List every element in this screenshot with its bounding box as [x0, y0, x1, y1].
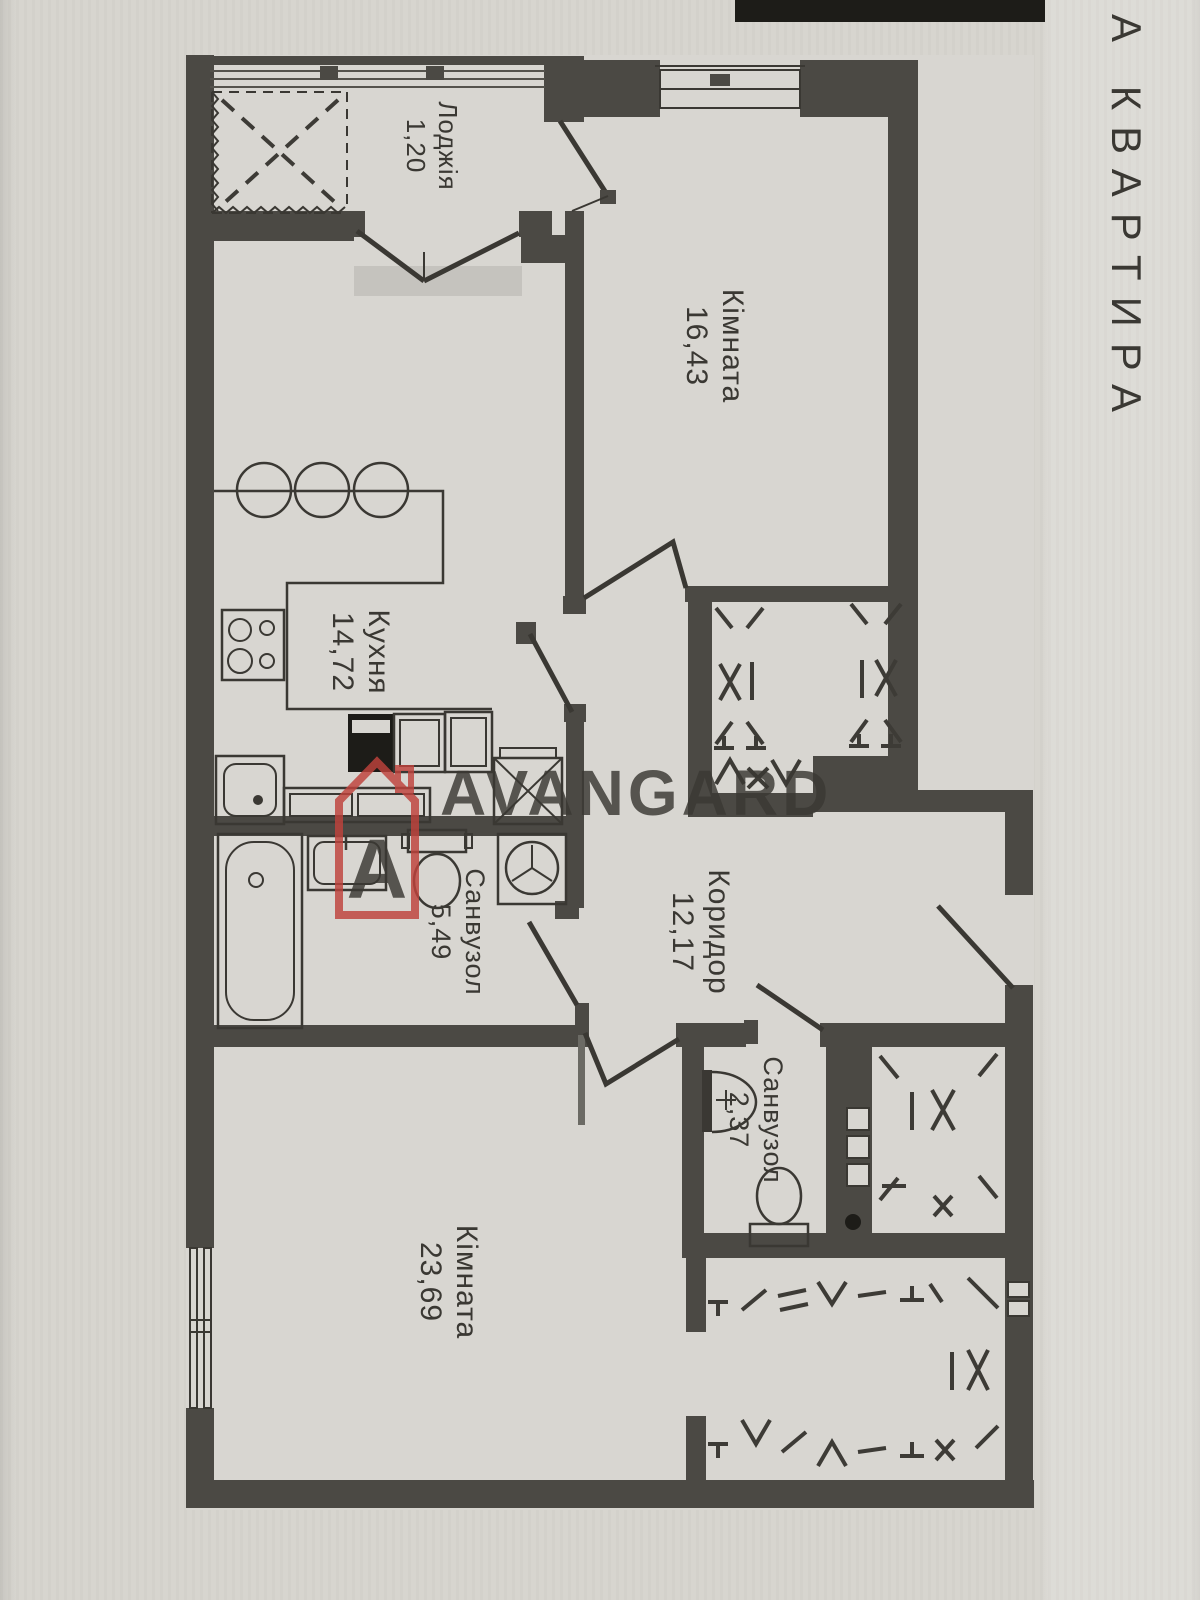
room-name: Санвузол: [758, 1056, 788, 1183]
side-label-text: А КВАРТИРА: [1103, 14, 1150, 428]
room-area: 5,49: [426, 904, 456, 961]
floor-plan-svg: Лоджія 1,20 Кімната 16,43 Кухня 14,72 Са…: [0, 0, 1200, 1600]
scanned-floorplan-page: { "page": { "side_label": "А КВАРТИРА" }…: [0, 0, 1200, 1600]
room-area: 12,17: [666, 892, 699, 972]
room-name: Лоджія: [433, 101, 463, 190]
watermark-brand-text: AVANGARD: [440, 757, 832, 829]
door-threshold: [354, 266, 522, 296]
room-name: Санвузол: [460, 868, 490, 995]
side-label: А КВАРТИРА: [1103, 14, 1150, 428]
room-area: 23,69: [414, 1242, 447, 1322]
room-name: Кімната: [716, 289, 749, 403]
room-area: 2,37: [724, 1092, 754, 1149]
logo-letter: A: [347, 822, 408, 916]
room-area: 16,43: [680, 306, 713, 386]
room-name: Кімната: [450, 1225, 483, 1339]
room-area: 1,20: [401, 119, 431, 174]
room-name: Коридор: [702, 869, 735, 994]
room-name: Кухня: [362, 609, 395, 694]
page-crop-bar: [735, 0, 1045, 22]
room-area: 14,72: [326, 612, 359, 692]
